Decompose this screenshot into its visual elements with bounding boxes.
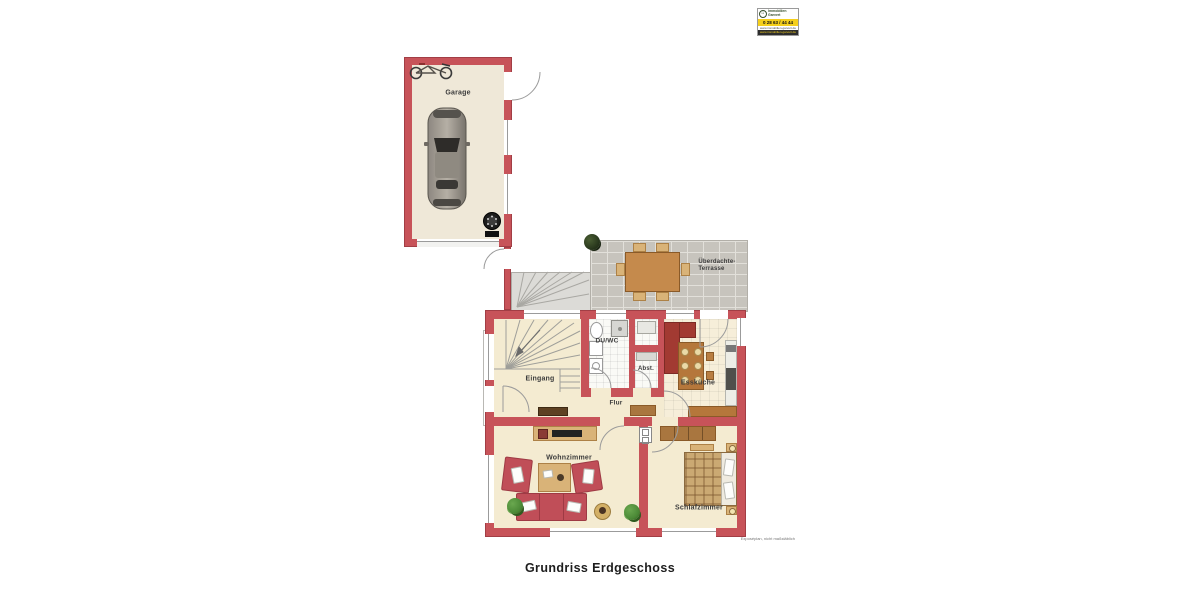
window-kitchen-right <box>737 318 746 346</box>
terrace-plant <box>584 234 600 250</box>
garden-gate-gap <box>504 249 511 269</box>
washing-machine <box>589 358 603 374</box>
window-wohnzimmer-bottom <box>550 528 636 537</box>
bed <box>684 452 737 506</box>
sideboard-decor <box>538 429 548 439</box>
room-label-schlafzimmer: Schlafzimmer <box>675 505 723 512</box>
garage-window-2 <box>504 174 512 214</box>
garage-window-1 <box>504 120 512 155</box>
kitchen-chair <box>694 362 702 370</box>
abst-door-gap <box>633 388 651 397</box>
armchair-right <box>571 460 603 494</box>
room-label-terrasse: Überdachte- Terrasse <box>698 259 735 273</box>
abst-shelf <box>636 352 657 361</box>
front-door-gap <box>485 386 494 412</box>
wohnzimmer-door-gap <box>600 417 624 426</box>
disclaimer-text: Exposéplan, nicht maßstäblich <box>700 536 795 541</box>
room-label-wohnzimmer: Wohnzimmer <box>546 455 592 462</box>
kitchen-chair <box>694 348 702 356</box>
coffee-table <box>538 463 571 492</box>
pet-basket <box>594 503 611 520</box>
floor-plan-canvas: ⌂ Immobilien Garvert 0 28 63 / 44 44 www… <box>0 0 1200 600</box>
garage-door <box>417 239 499 247</box>
room-label-garage: Garage <box>445 90 470 97</box>
kitchen-sink-unit <box>726 345 736 352</box>
kitchen-chair <box>681 348 689 356</box>
armchair-left <box>501 456 533 493</box>
house-logo-icon: ⌂ <box>759 10 767 18</box>
tire-stack-icon <box>482 211 502 239</box>
page-title: Grundriss Erdgeschoss <box>0 561 1200 575</box>
schlafzimmer-door-gap <box>652 417 678 426</box>
window-wohnzimmer-left <box>485 455 494 523</box>
window-eingang-top <box>524 310 580 319</box>
shower <box>611 320 628 337</box>
duwc-door-gap <box>591 388 611 397</box>
kitchen-chair <box>681 362 689 370</box>
storage-appliance <box>637 321 656 334</box>
agency-logo: ⌂ Immobilien Garvert 0 28 63 / 44 44 www… <box>757 8 799 36</box>
terrace-table <box>625 252 680 292</box>
kitchen-doorway <box>658 397 664 417</box>
flur-sideboard <box>630 405 656 416</box>
window-kitchen-top <box>666 310 694 319</box>
bed-bench <box>690 444 714 451</box>
room-label-eingang: Eingang <box>525 376 554 383</box>
chimney-symbol <box>639 427 652 443</box>
agency-logo-header: ⌂ Immobilien Garvert <box>758 9 798 19</box>
garage-side-door-gap <box>504 72 512 100</box>
terrace-chair <box>633 292 646 301</box>
living-room-plant <box>507 498 523 514</box>
room-label-abst: Abst. <box>638 366 654 372</box>
living-room-plant <box>624 504 640 520</box>
nightstand-lamp <box>729 508 736 515</box>
terrace-chair <box>616 263 625 276</box>
room-label-flur: Flur <box>609 400 622 407</box>
terrace-chair <box>681 263 690 276</box>
terrasse-line1: Überdachte- <box>698 259 735 265</box>
bicycle-icon <box>406 61 458 81</box>
exterior-stairs <box>511 272 592 312</box>
tv <box>552 430 582 437</box>
kitchen-stove <box>726 368 736 390</box>
agency-name-line2: Garvert <box>768 13 780 17</box>
terrasse-line2: Terrasse <box>698 266 724 272</box>
window-eingang-left <box>485 334 494 380</box>
kitchen-side-chair <box>706 352 714 361</box>
wardrobe <box>660 426 716 441</box>
room-label-esskueche: Essküche <box>681 380 715 387</box>
room-label-duwc: DU/WC <box>595 338 618 345</box>
car-top-view-icon <box>424 106 470 212</box>
agency-phone: 0 28 63 / 44 44 <box>758 19 798 26</box>
sofa <box>516 493 587 521</box>
terrace-chair <box>633 243 646 252</box>
sink <box>590 322 603 339</box>
terrace-door-gap <box>700 310 728 319</box>
nightstand-lamp <box>729 445 736 452</box>
agency-name: Immobilien Garvert <box>768 10 786 17</box>
window-duwc <box>596 310 626 319</box>
kitchen-counter-bottom <box>688 406 737 417</box>
room-eingang <box>494 319 581 417</box>
terrace-chair <box>656 243 669 252</box>
agency-web-band: www.immobilien-garvert.de <box>758 30 798 35</box>
hall-dresser <box>538 407 568 416</box>
terrace-chair <box>656 292 669 301</box>
